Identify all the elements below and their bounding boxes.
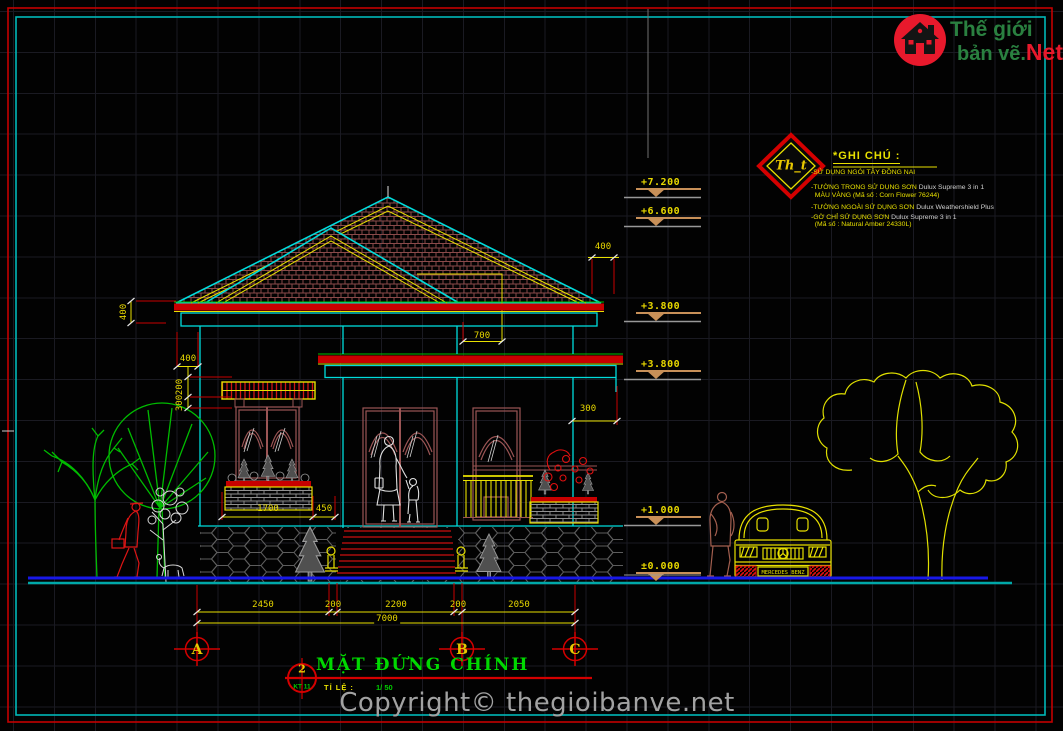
dim-chain-5: 2050 [508, 600, 530, 610]
logo-house-icon [894, 14, 946, 66]
cad-linework: MERCEDES BENZ [0, 0, 1063, 731]
copyright-watermark: Copyright© thegioibanve.net [339, 688, 735, 718]
grid-axis-label-c: C [569, 642, 580, 658]
notes-title: *GHI CHÚ : [833, 150, 900, 164]
note-line: MÀU VÀNG (Mã số : Corn Flower 76244) [811, 192, 939, 199]
dim-roof-overhang-left: 400 [119, 304, 129, 320]
green-trees [44, 403, 215, 578]
dim-chain-1: 2450 [252, 600, 274, 610]
dim-fascia-lower: 300 [175, 395, 185, 411]
dim-window-width: 1700 [257, 504, 279, 514]
dim-roof-overhang-right: 400 [595, 242, 611, 252]
woman-and-child-silhouette [375, 437, 420, 523]
note-line: -TƯỜNG TRONG SỬ DỤNG SƠN Dulux Supreme 3… [811, 184, 984, 191]
car: MERCEDES BENZ [735, 505, 831, 579]
level-annotation: +6.600 [641, 206, 680, 217]
dim-window-to-wall: 450 [316, 504, 332, 514]
drawing-title: MẶT ĐỨNG CHÍNH [316, 655, 529, 675]
note-line: -SỬ DỤNG NGÓI TÂY ĐỒNG NAI [811, 169, 915, 176]
license-plate-text: MERCEDES BENZ [761, 570, 805, 576]
detail-number: 2 [298, 663, 306, 676]
logo-net-suffix: Net [1026, 39, 1063, 65]
main-eave-band [174, 302, 604, 326]
roof [176, 186, 601, 342]
dim-fascia-upper: 200 [175, 379, 185, 395]
logo-brand-line2: bản vẽ.Net [957, 39, 1063, 66]
note-line: -GỜ CHỈ SỬ DỤNG SƠN Dulux Supreme 3 in 1 [811, 214, 957, 221]
standing-man-figure [707, 493, 734, 577]
dim-porch-overhang: 300 [580, 404, 596, 414]
walking-man-figure [112, 503, 143, 577]
level-annotation: +7.200 [641, 177, 680, 188]
level-annotation: +3.800 [641, 359, 680, 370]
dim-total-width: 7000 [374, 614, 400, 624]
dim-porch-ridge-offset: 700 [474, 331, 490, 341]
cad-drawing-canvas: MERCEDES BENZ [0, 0, 1063, 731]
note-line: -TƯỜNG NGOÀI SỬ DỤNG SƠN Dulux Weathersh… [811, 204, 994, 211]
yellow-tree [818, 371, 1018, 581]
dim-chain-2: 200 [325, 600, 341, 610]
left-window [222, 382, 315, 510]
grid-axis-label-a: A [192, 642, 203, 658]
stamp-label: Th_t [775, 159, 807, 174]
level-annotation: ±0.000 [641, 561, 680, 572]
porch-eave-band [318, 354, 623, 378]
sheet-code: KT 11 [293, 684, 310, 691]
main-door [363, 408, 437, 527]
level-markers [624, 189, 701, 581]
window-plants [238, 455, 298, 482]
note-line: (Mã số : Natural Amber 24330L) [811, 221, 912, 228]
dim-eave-offset: 400 [180, 354, 196, 364]
stone-base [200, 527, 623, 583]
dim-chain-4: 200 [450, 600, 466, 610]
level-annotation: +1.000 [641, 505, 680, 516]
dim-chain-3: 2200 [385, 600, 407, 610]
porch-door [463, 408, 598, 523]
level-annotation: +3.800 [641, 301, 680, 312]
